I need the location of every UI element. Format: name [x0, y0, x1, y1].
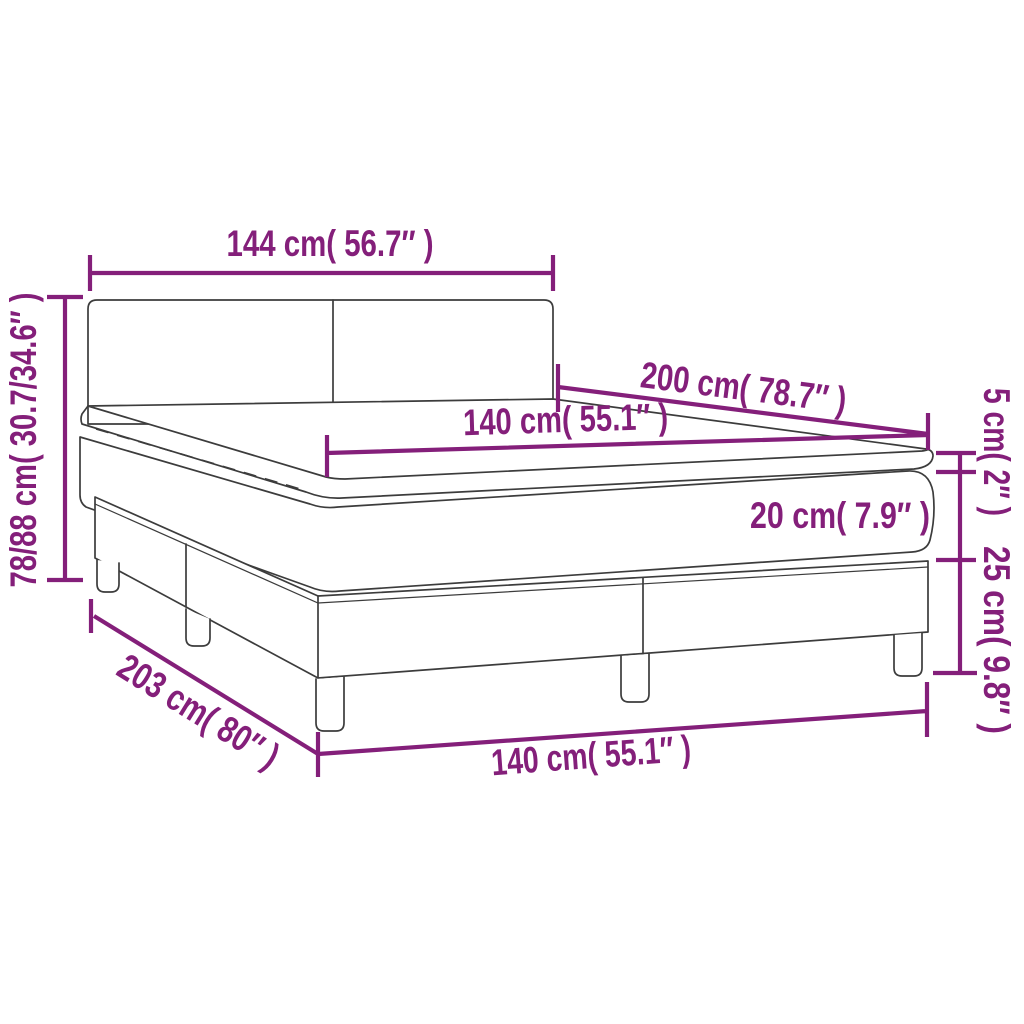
dim-headboard-width: 144 cm( 56.7″ )	[90, 223, 553, 291]
bed-leg	[97, 560, 119, 592]
dim-right-height-stack: 5 cm( 2″ ) 25 cm( 9.8″ )	[933, 388, 1017, 734]
dim-mattress-width-label: 140 cm( 55.1″ )	[463, 396, 669, 443]
dimension-diagram: 144 cm( 56.7″ ) 78/88 cm( 30.7/34.6″ ) 2…	[0, 0, 1024, 1024]
dim-overall-height-label: 78/88 cm( 30.7/34.6″ )	[3, 293, 44, 588]
dim-topper-height-label: 5 cm( 2″ )	[976, 388, 1017, 516]
dim-base-width-label: 140 cm( 55.1″ )	[490, 728, 692, 784]
bed-leg	[621, 654, 649, 702]
dim-mattress-height-label: 20 cm( 7.9″ )	[750, 495, 930, 536]
bed-leg	[316, 677, 344, 731]
bed-leg	[894, 633, 922, 676]
dim-overall-height: 78/88 cm( 30.7/34.6″ )	[3, 293, 83, 588]
dim-base-length-label: 203 cm( 80″ )	[110, 646, 286, 777]
bed-dimension-drawing: 144 cm( 56.7″ ) 78/88 cm( 30.7/34.6″ ) 2…	[0, 0, 1024, 1024]
dim-headboard-width-label: 144 cm( 56.7″ )	[227, 223, 434, 264]
dim-base-height-label: 25 cm( 9.8″ )	[976, 546, 1017, 734]
